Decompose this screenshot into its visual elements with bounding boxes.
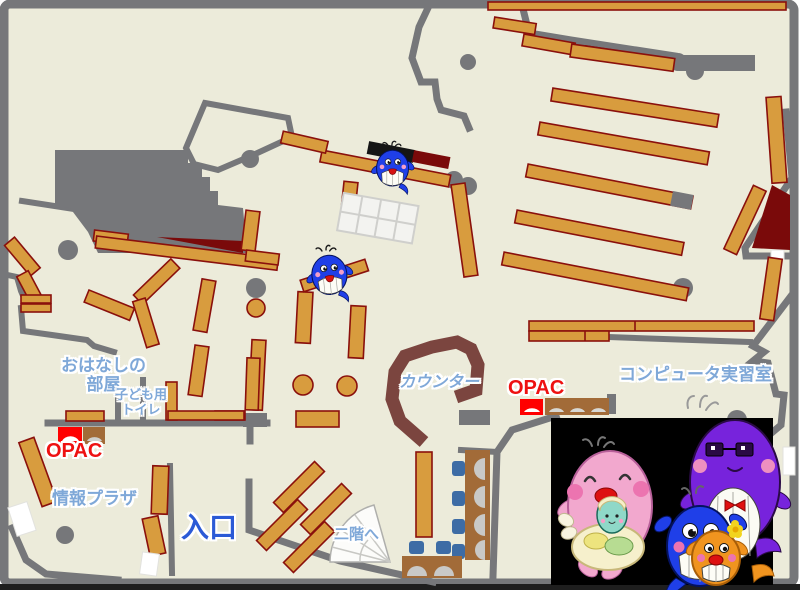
label-computer-room: コンピュータ実習室 (619, 365, 772, 384)
label-opac-right: OPAC (508, 377, 564, 399)
opac-terminal-right (520, 398, 609, 415)
counter-side-desk (459, 410, 490, 425)
label-entrance: 入口 (181, 512, 237, 543)
label-opac-left: OPAC (46, 440, 102, 462)
label-kids-toilet-line1: 子ども用 (105, 388, 177, 403)
label-storytelling-room-line1: おはなしの (36, 356, 171, 375)
label-kids-toilet-line2: トイレ (105, 403, 177, 418)
label-info-plaza: 情報プラザ (52, 489, 137, 508)
library-floor-map: おはなしの 部屋 子ども用 トイレ OPAC 情報プラザ 入口 二階へ カウンタ… (0, 0, 800, 590)
label-stairs-to-2f: 二階へ (334, 527, 379, 544)
label-kids-toilet: 子ども用 トイレ (105, 388, 177, 417)
whale-family-photo (551, 396, 794, 590)
label-counter: カウンター (399, 374, 479, 392)
